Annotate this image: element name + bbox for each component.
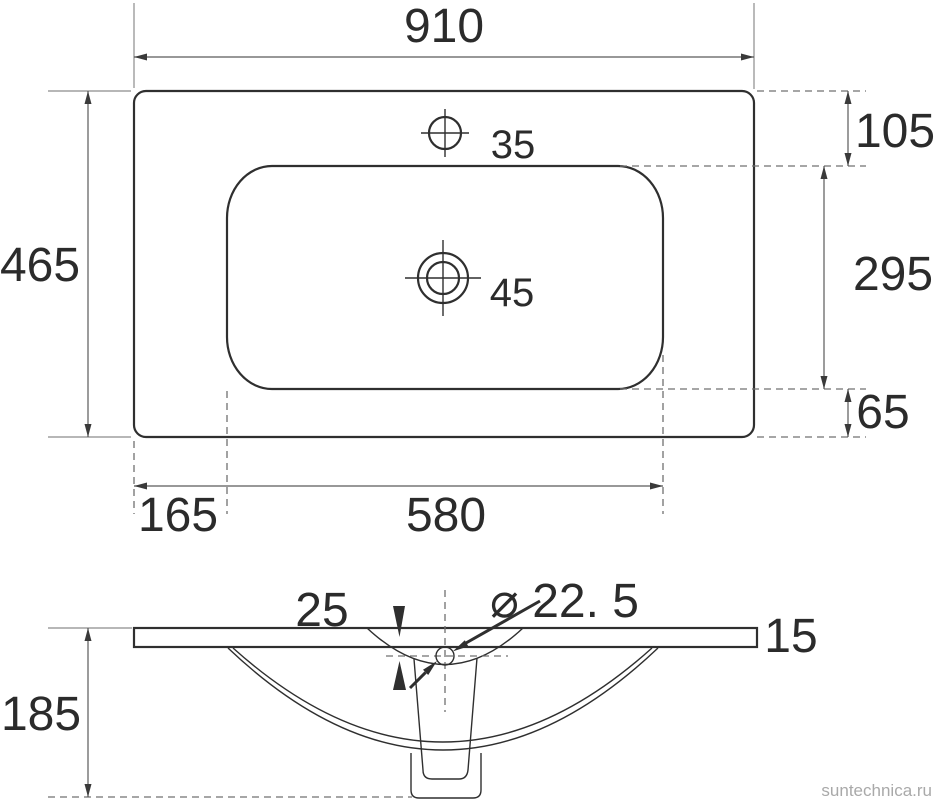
drain-diameter-label: ⌀ 22. 5	[490, 575, 639, 628]
bowl-inner-curve	[233, 648, 652, 742]
sink-dimension-drawing: 35 45 910 465 105 295	[0, 0, 936, 800]
arrowhead	[85, 91, 92, 104]
top-edge-to-basin-label: 105	[855, 105, 935, 158]
watermark: suntechnica.ru	[821, 781, 932, 800]
top-view: 35 45 910 465 105 295	[0, 0, 935, 542]
left-edge-to-basin-label: 165	[138, 489, 218, 542]
arrowhead	[821, 376, 828, 389]
basin-to-bottom-edge-label: 65	[856, 386, 909, 439]
diameter-leader-line	[410, 672, 426, 688]
arrowhead	[741, 54, 754, 61]
basin-width-label: 580	[406, 489, 486, 542]
arrowhead	[821, 166, 828, 179]
faucet-hole-label: 35	[491, 123, 536, 167]
arrowhead	[845, 424, 852, 437]
recess-depth-arrow	[393, 661, 406, 690]
top-thickness-label: 15	[764, 610, 817, 663]
arrowhead	[134, 54, 147, 61]
arrowhead	[845, 153, 852, 166]
overall-height-label: 185	[1, 688, 81, 741]
arrowhead	[845, 91, 852, 104]
bowl-outer-curve	[228, 648, 658, 750]
arrowhead	[845, 389, 852, 402]
drain-hole-label: 45	[490, 271, 535, 315]
arrowhead	[85, 784, 92, 797]
technical-drawing-canvas: 35 45 910 465 105 295	[0, 0, 936, 800]
overall-depth-label: 465	[0, 239, 80, 292]
arrowhead	[85, 424, 92, 437]
arrowhead	[650, 483, 663, 490]
arrowhead	[85, 628, 92, 641]
basin-front-to-back-label: 295	[853, 248, 933, 301]
front-view: 25 ⌀ 22. 5 15 185	[1, 575, 818, 798]
recess-depth-label: 25	[295, 584, 348, 637]
overall-width-label: 910	[404, 0, 484, 53]
